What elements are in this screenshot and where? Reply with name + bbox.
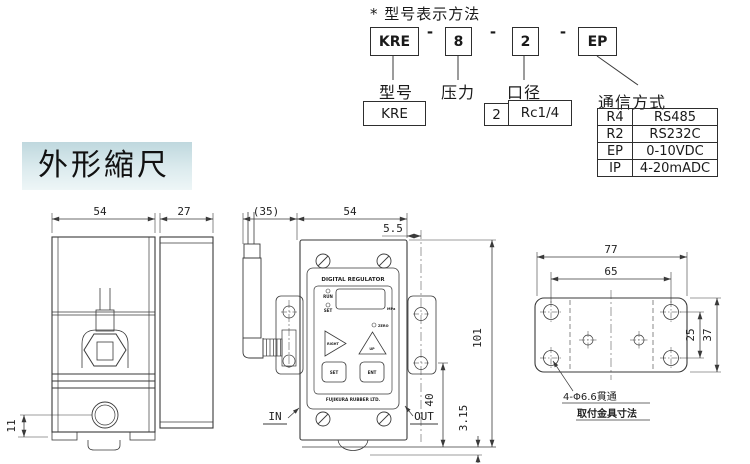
zero-led [372, 323, 376, 327]
front-height-dim: 101 [471, 328, 484, 348]
inlet-label: IN [268, 410, 281, 423]
comm-code-cell: EP [598, 143, 633, 160]
drawing-canvas: 54 27 11 (35) 54 5.5 101 40 3.15 IN OUT … [0, 0, 750, 464]
label-model: 型号 [364, 79, 428, 103]
code-box-comm: EP [578, 27, 617, 56]
mount-width-dim: 77 [604, 243, 617, 256]
comm-row: R4 RS485 [598, 109, 718, 126]
label-pressure: 压力 [426, 79, 490, 103]
front-connector-dim: (35) [253, 205, 280, 218]
zero-led-label: ZERO [378, 324, 389, 328]
comm-value-cell: 4-20mADC [633, 160, 718, 177]
unit-label: MPa [387, 307, 396, 311]
comm-value-cell: RS485 [633, 109, 718, 126]
side-view-drawing [18, 213, 213, 450]
comm-row: R2 RS232C [598, 126, 718, 143]
brand-label: FUJIKURA RUBBER LTD. [326, 397, 381, 402]
front-width-dim: 54 [343, 205, 357, 218]
run-led-label: RUN [323, 294, 333, 299]
comm-value-cell: 0-10VDC [633, 143, 718, 160]
right-button-label: RIGHT [327, 342, 339, 346]
mount-height-dim: 37 [701, 328, 714, 341]
bore-thread-box: Rc1/4 [508, 100, 572, 126]
code-separator: - [557, 23, 569, 41]
set-button-label: SET [330, 370, 339, 375]
pressure-display [336, 289, 385, 309]
set-led-label: SET [324, 308, 333, 313]
mount-holes-y-dim: 25 [684, 328, 697, 341]
front-out-dim: 40 [423, 393, 436, 406]
outlet-label: OUT [414, 410, 434, 423]
regulator-panel [307, 268, 399, 409]
mount-holes-x-dim: 65 [604, 265, 617, 278]
model-value-box: KRE [363, 101, 426, 126]
comm-code-cell: R2 [598, 126, 633, 143]
model-designation-title: * 型号表示方法 [370, 3, 480, 24]
comm-code-cell: IP [598, 160, 633, 177]
bore-size-box: 2 [484, 103, 509, 126]
code-separator: - [424, 23, 436, 41]
side-port-dim: 11 [5, 419, 18, 432]
comm-value-cell: RS232C [633, 126, 718, 143]
comm-code-cell: R4 [598, 109, 633, 126]
comm-row: EP 0-10VDC [598, 143, 718, 160]
mount-caption: 取付金具寸法 [577, 407, 637, 420]
catalog-page: 54 27 11 (35) 54 5.5 101 40 3.15 IN OUT … [0, 0, 750, 464]
up-button-label: UP [369, 347, 375, 351]
scale-banner: 外形縮尺 [22, 142, 192, 190]
set-led [326, 303, 330, 307]
comm-row: IP 4-20mADC [598, 160, 718, 177]
left-bracket [276, 296, 303, 374]
code-box-pressure: 8 [445, 27, 472, 56]
comm-options-table: R4 RS485 R2 RS232C EP 0-10VDC IP 4-20mAD… [597, 108, 718, 177]
side-depth-dim: 27 [177, 205, 190, 218]
code-separator: - [487, 23, 499, 41]
front-foot-dim: 3.15 [457, 405, 470, 432]
ent-button-label: ENT [368, 370, 377, 375]
run-led [326, 289, 330, 293]
side-width-dim: 54 [93, 205, 107, 218]
code-box-model: KRE [370, 27, 419, 56]
code-box-bore: 2 [512, 27, 539, 56]
hole-note: 4-Φ6.6貫通 [563, 391, 617, 403]
panel-title: DIGITAL REGULATOR [321, 277, 385, 283]
front-offset-dim: 5.5 [383, 222, 403, 235]
